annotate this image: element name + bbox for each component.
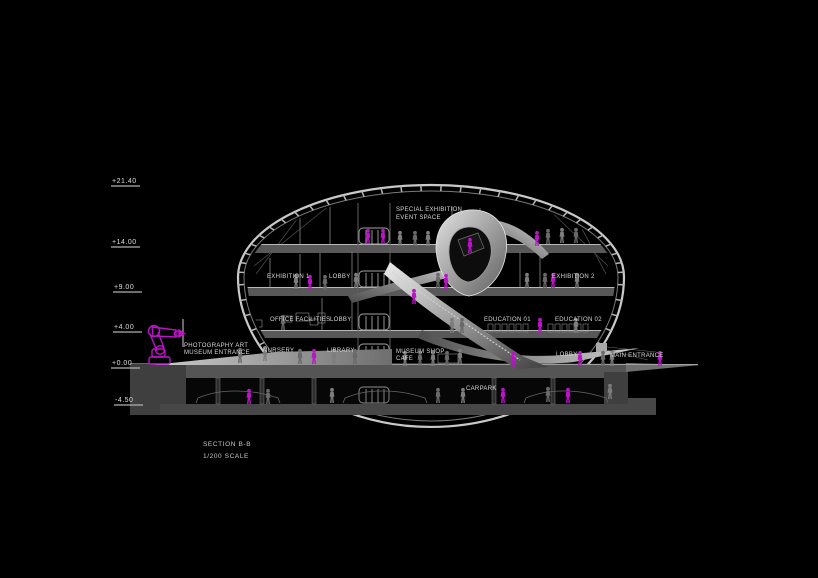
room-label: CARPARK (466, 386, 497, 392)
elevation-marker-label: +9.00 (114, 284, 134, 291)
rib (240, 263, 246, 264)
ground-slab (130, 364, 628, 378)
room-label: MAIN ENTRANCE (610, 353, 664, 359)
sign-board (596, 343, 607, 352)
room-label: PHOTOGRAPHY ART (184, 343, 248, 349)
architectural-section-svg: +21.40+14.00+9.00+4.00+0.00-4.50 SPECIAL… (0, 0, 818, 578)
carpark-column (260, 378, 264, 404)
room-label: NURSERY (263, 348, 294, 354)
carpark-floor-slab (160, 404, 632, 415)
room-label: EVENT SPACE (396, 215, 441, 221)
right-wall (604, 372, 628, 405)
room-label: LOBBY (329, 274, 351, 280)
room-label: CAFE (396, 356, 413, 362)
right-step (628, 398, 656, 415)
room-label: MUSEUM ENTRANCE (184, 350, 250, 356)
floor-slab-14 (230, 244, 630, 253)
room-label: LIBRARY (327, 348, 355, 354)
elevation-marker-label: +14.00 (112, 239, 137, 246)
section-drawing-canvas: +21.40+14.00+9.00+4.00+0.00-4.50 SPECIAL… (0, 0, 818, 578)
rib (240, 300, 246, 301)
carpark-column (216, 378, 220, 404)
scale-label: 1/200 SCALE (203, 453, 249, 460)
elevation-marker-label: +0.00 (112, 360, 132, 367)
rib (401, 186, 402, 192)
room-label: MUSEUM SHOP (396, 349, 445, 355)
room-label: EDUCATION 01 (484, 317, 531, 323)
section-title: SECTION B-B (203, 441, 251, 448)
room-label: LOBBY (330, 317, 352, 323)
carpark-column (312, 378, 316, 404)
room-label: OFFICE FACILITIES (270, 317, 330, 323)
rib (460, 186, 461, 192)
elevation-marker-label: +21.40 (112, 178, 137, 185)
elevation-marker-label: +4.00 (114, 324, 134, 331)
room-label: EXHIBITION 1 (267, 274, 310, 280)
room-label: LOBBY (556, 352, 578, 358)
room-label: EDUCATION 02 (555, 317, 602, 323)
elevation-marker-label: -4.50 (115, 397, 133, 404)
room-label: EXHIBITION 2 (552, 274, 595, 280)
rib (616, 300, 622, 301)
rib (616, 263, 622, 264)
room-label: SPECIAL EXHIBITION (396, 207, 462, 213)
